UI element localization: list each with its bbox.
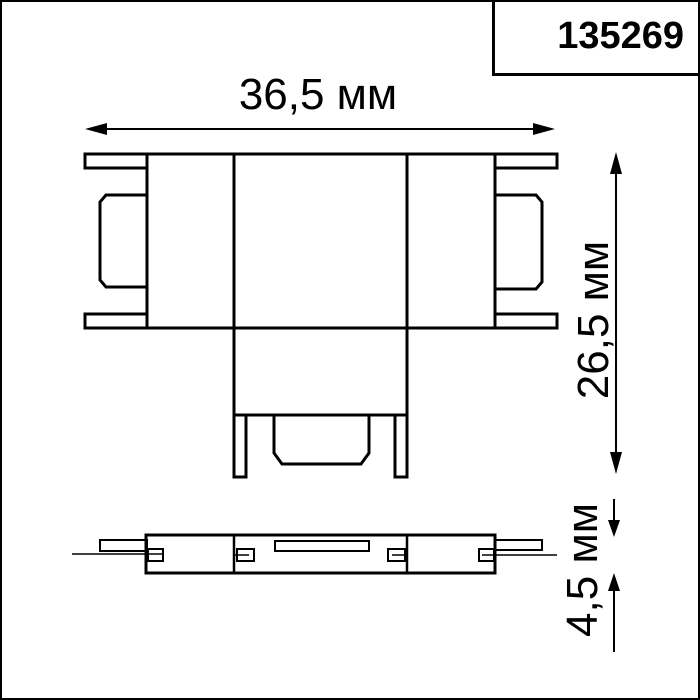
- arrowhead-up: [608, 573, 620, 591]
- side-left-tab: [100, 540, 147, 551]
- arrowhead-down: [610, 452, 622, 474]
- top-view-body: [147, 154, 495, 328]
- side-view-drawing: [72, 535, 557, 573]
- center-bar: [275, 541, 369, 551]
- side-right-tab: [495, 540, 542, 550]
- arrowhead-up: [610, 152, 622, 174]
- width-dimension-arrow: [85, 123, 555, 135]
- contact-1: [148, 549, 163, 561]
- top-view-drawing: [85, 154, 557, 477]
- bottom-plug: [274, 415, 369, 464]
- stem-outline: [234, 154, 407, 415]
- thickness-dimension-arrow: [608, 499, 620, 652]
- right-plug: [495, 195, 542, 289]
- height-dimension-label: 26,5 мм: [572, 241, 616, 399]
- technical-drawing-page: 135269: [0, 0, 700, 700]
- top-right-tab: [495, 154, 557, 168]
- top-left-tab: [85, 154, 147, 168]
- bottom-right-tab: [495, 314, 557, 328]
- right-leg: [395, 415, 407, 477]
- width-dimension-label: 36,5 мм: [239, 73, 397, 117]
- thickness-dimension-label: 4,5 мм: [561, 503, 605, 637]
- arrowhead-down: [608, 520, 620, 537]
- bottom-left-tab: [85, 314, 147, 328]
- arrowhead-left: [85, 123, 107, 135]
- left-plug: [100, 195, 147, 287]
- left-leg: [234, 415, 246, 477]
- arrowhead-right: [533, 123, 555, 135]
